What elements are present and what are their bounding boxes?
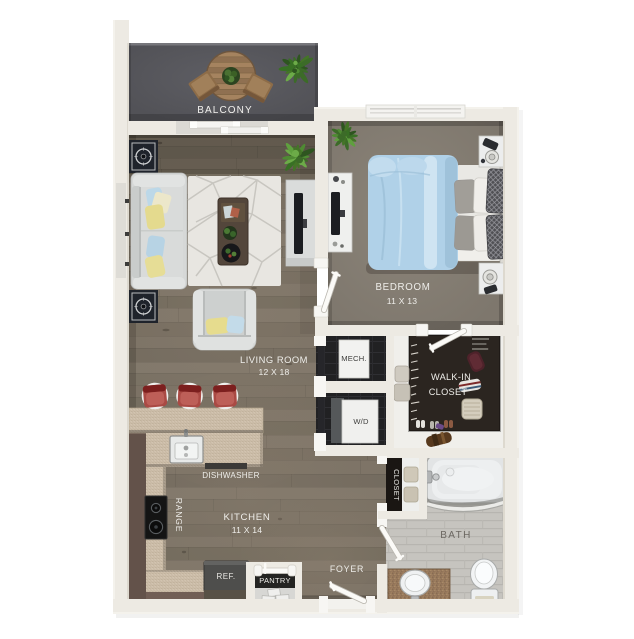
svg-text:11 X 14: 11 X 14 bbox=[232, 525, 262, 535]
svg-text:W/D: W/D bbox=[353, 417, 369, 426]
svg-text:BEDROOM: BEDROOM bbox=[376, 282, 431, 293]
svg-text:BATH: BATH bbox=[440, 530, 472, 541]
svg-text:RANGE: RANGE bbox=[174, 498, 184, 533]
svg-text:DISHWASHER: DISHWASHER bbox=[202, 471, 260, 480]
svg-text:WALK-IN: WALK-IN bbox=[431, 372, 471, 382]
svg-text:KITCHEN: KITCHEN bbox=[223, 512, 270, 523]
svg-text:11 X 13: 11 X 13 bbox=[387, 296, 417, 306]
svg-text:LIVING ROOM: LIVING ROOM bbox=[240, 354, 308, 365]
svg-text:MECH.: MECH. bbox=[341, 354, 366, 363]
svg-text:12 X 18: 12 X 18 bbox=[258, 367, 289, 377]
svg-text:PANTRY: PANTRY bbox=[259, 576, 291, 585]
svg-text:CLOSET: CLOSET bbox=[429, 387, 468, 397]
svg-text:CLOSET: CLOSET bbox=[392, 469, 401, 501]
svg-text:BALCONY: BALCONY bbox=[197, 105, 253, 116]
svg-text:REF.: REF. bbox=[217, 572, 236, 581]
svg-text:FOYER: FOYER bbox=[330, 564, 364, 574]
